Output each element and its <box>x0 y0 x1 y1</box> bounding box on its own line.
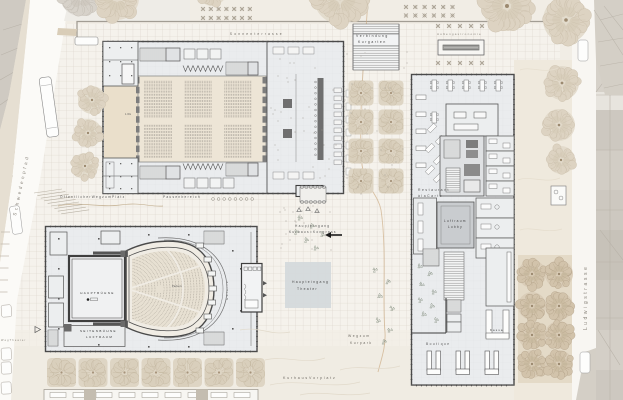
svg-text:Parkett: Parkett <box>172 284 182 288</box>
svg-text:G a l e r i e: G a l e r i e <box>225 281 229 300</box>
svg-text:P a u s e n b e r e i c h: P a u s e n b e r e i c h <box>163 195 200 199</box>
svg-text:L u d w i g s t r a s s e: L u d w i g s t r a s s e <box>583 267 589 330</box>
svg-text:W e g T h e a t e r: W e g T h e a t e r <box>1 338 25 342</box>
svg-text:L o b b y: L o b b y <box>448 225 462 229</box>
svg-text:K a s s a: K a s s a <box>490 328 503 332</box>
svg-text:H a u p t e i n g a n g: H a u p t e i n g a n g <box>292 280 328 284</box>
svg-text:K u r p a r k: K u r p a r k <box>350 341 371 345</box>
svg-text:K u r g a r t e n: K u r g a r t e n <box>358 40 386 44</box>
svg-text:K u r h a u s = K o n g r e s: K u r h a u s = K o n g r e s s <box>289 230 336 234</box>
svg-text:1.OG: 1.OG <box>125 113 131 116</box>
svg-text:S o n n e n t e r r a s s e: S o n n e n t e r r a s s e <box>230 32 282 36</box>
svg-text:K u r h a u s V o r p l a t z: K u r h a u s V o r p l a t z <box>283 376 335 380</box>
svg-text:à l a C a r t e: à l a C a r t e <box>418 194 442 198</box>
svg-text:R e s t a u r a n t: R e s t a u r a n t <box>418 188 449 192</box>
svg-text:L u f t r a u m: L u f t r a u m <box>444 219 466 223</box>
svg-text:V e r b i n d u n g: V e r b i n d u n g <box>356 34 388 38</box>
svg-text:H A U P T B Ü H N E: H A U P T B Ü H N E <box>80 291 113 295</box>
svg-text:H a u p t e i n g a n g: H a u p t e i n g a n g <box>295 224 329 228</box>
svg-text:T h e a t e r: T h e a t e r <box>297 287 318 291</box>
svg-text:Ö f f e n t l i c h e r W e g: Ö f f e n t l i c h e r W e g z u m P l … <box>60 195 125 199</box>
svg-text:W e g z u m: W e g z u m <box>348 334 369 338</box>
svg-text:A u ß e n g a s t r o n o m i: A u ß e n g a s t r o n o m i e <box>437 32 481 36</box>
svg-text:S E I T E N B Ü H N E: S E I T E N B Ü H N E <box>80 329 116 333</box>
svg-text:L U F T R A U M: L U F T R A U M <box>86 335 112 339</box>
svg-text:B o u t i q u e: B o u t i q u e <box>426 342 449 346</box>
